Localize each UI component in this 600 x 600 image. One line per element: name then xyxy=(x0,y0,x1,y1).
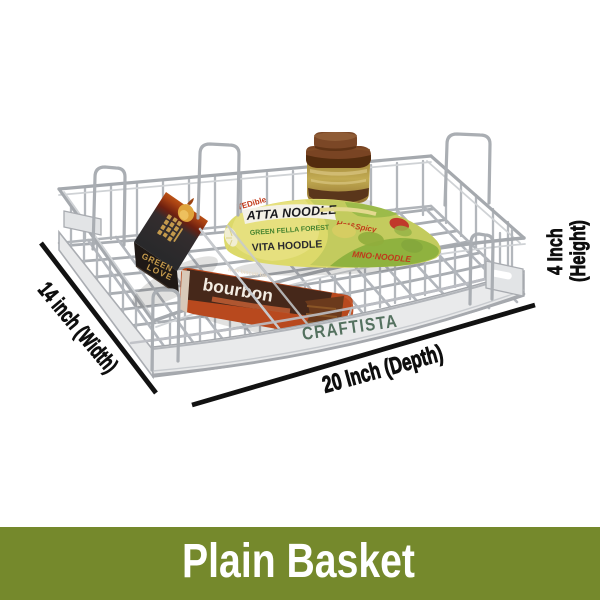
svg-text:4 Inch: 4 Inch xyxy=(543,228,567,275)
svg-text:Plain Basket: Plain Basket xyxy=(182,534,415,588)
svg-text:(Height): (Height) xyxy=(566,220,589,282)
